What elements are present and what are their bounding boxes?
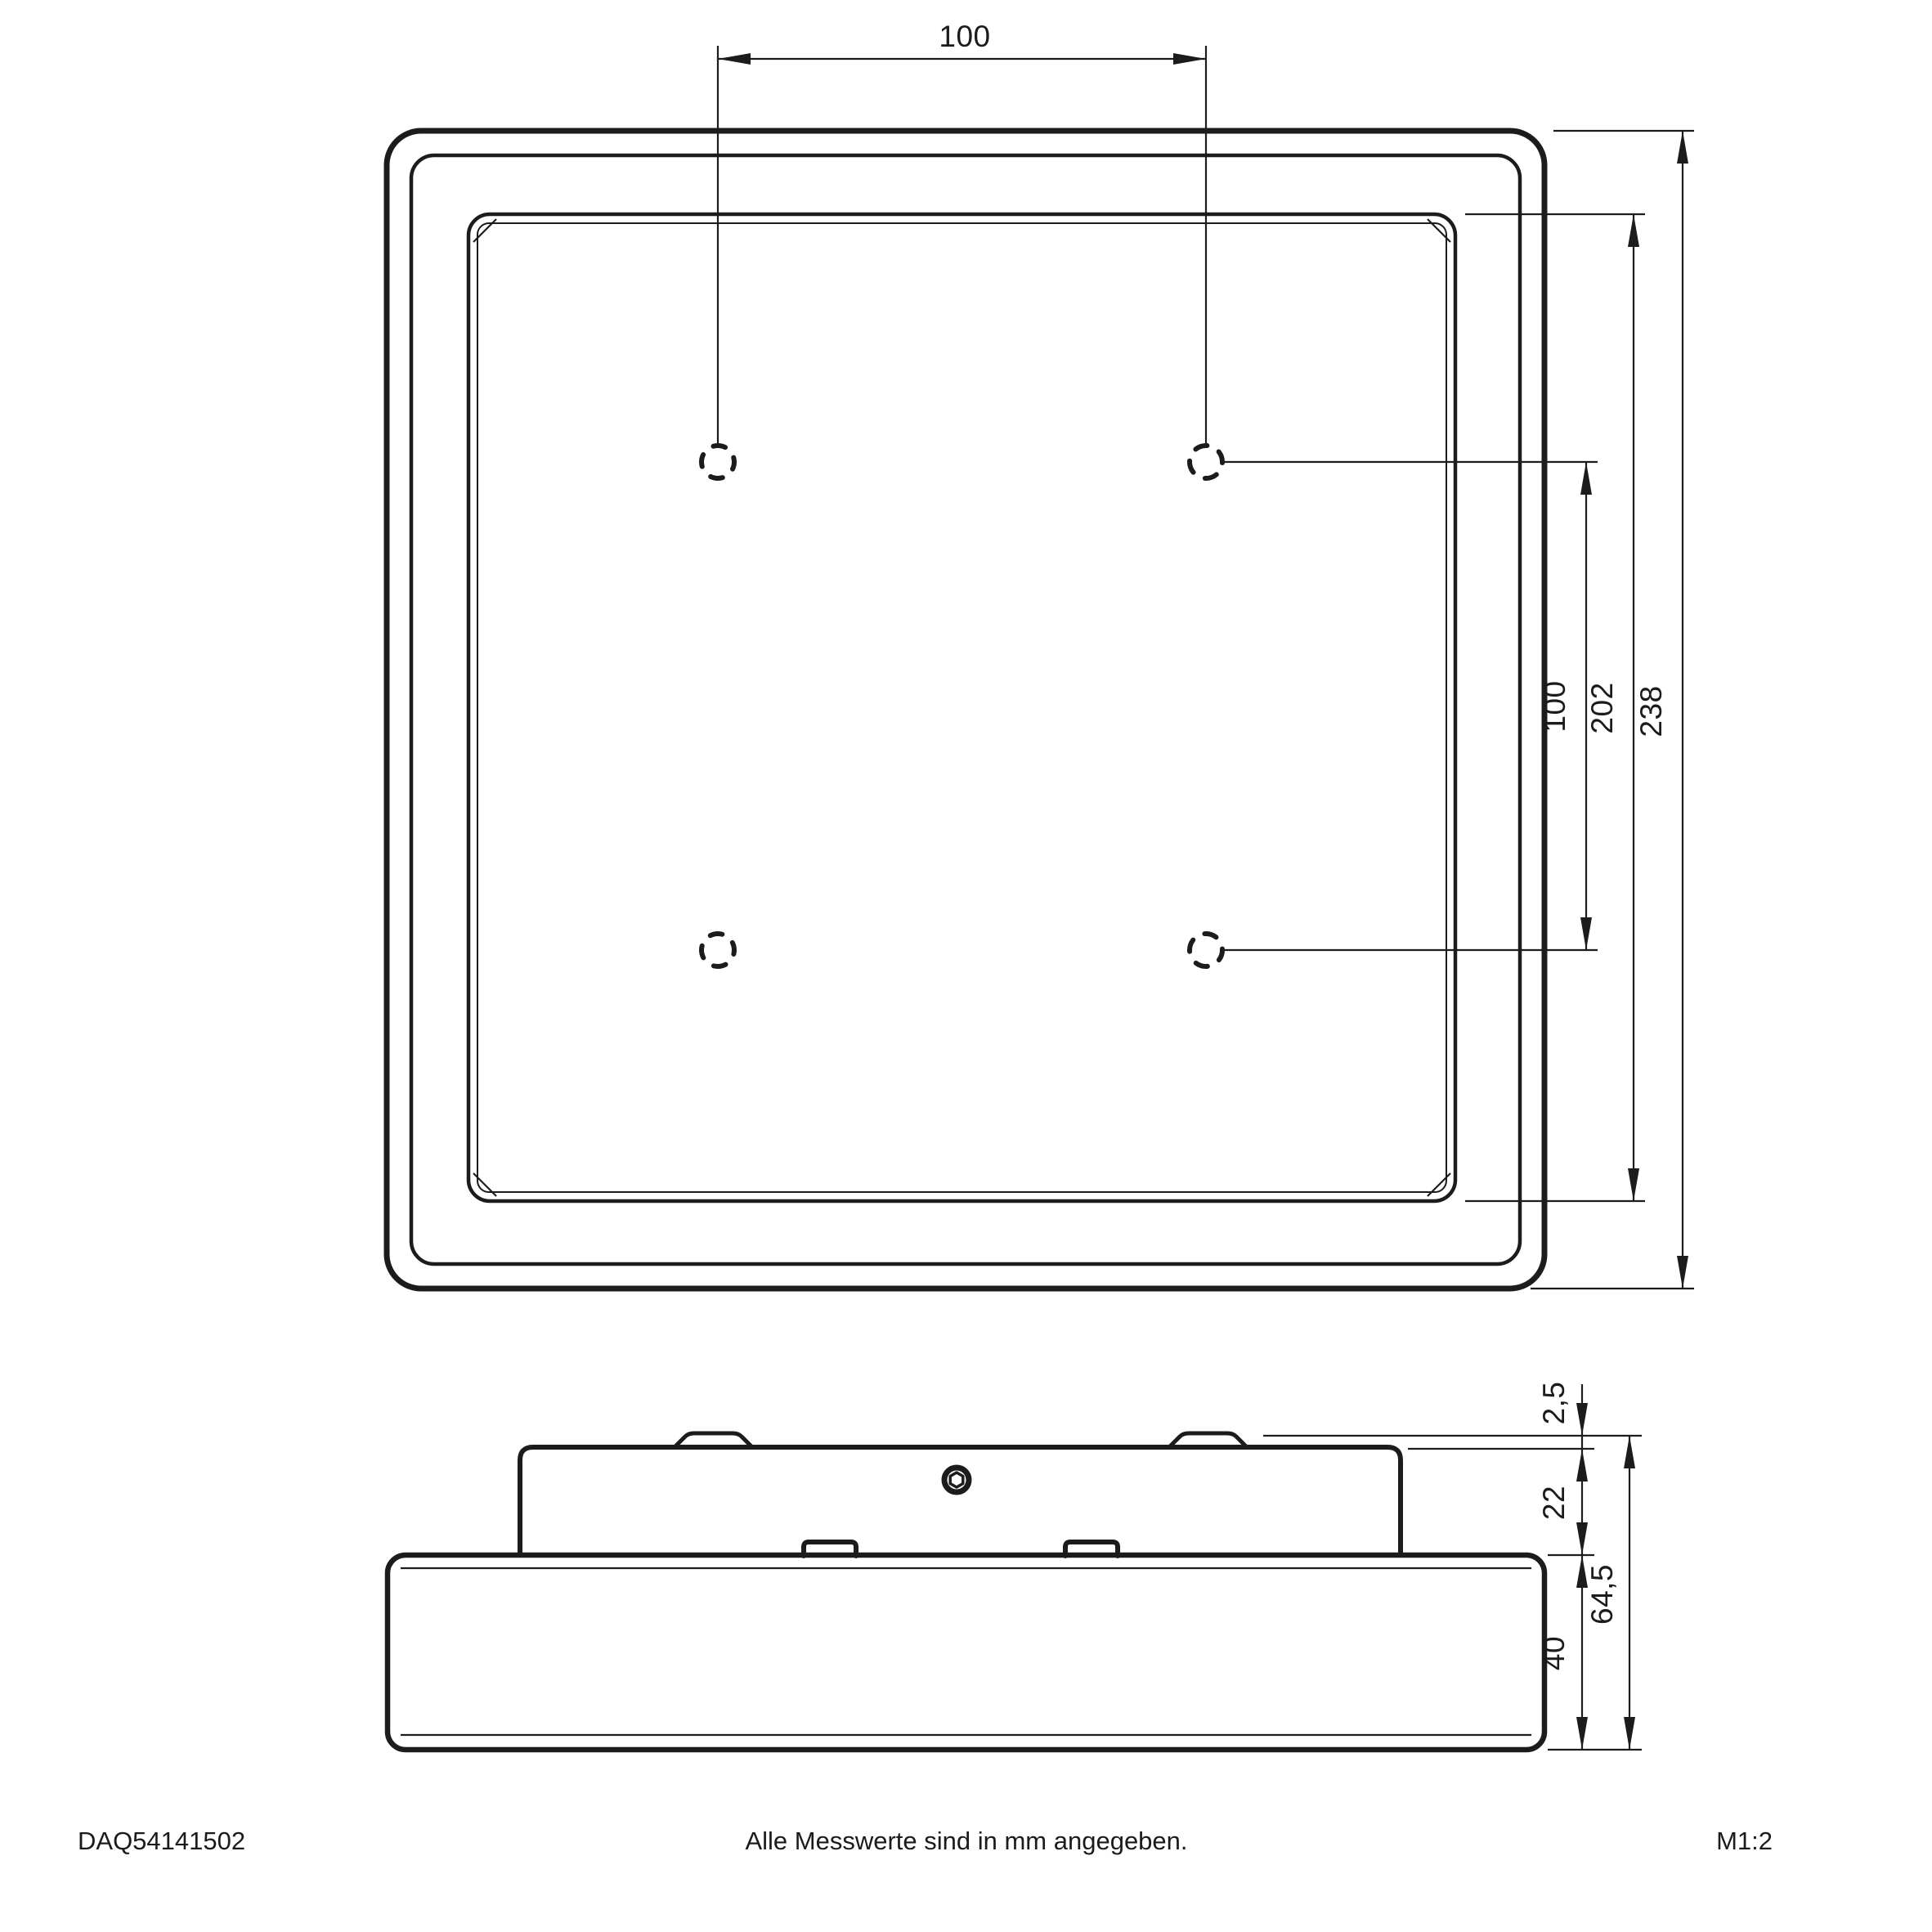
outer-frame-inner-edge [411, 155, 1520, 1264]
arrowhead-bottom [1580, 917, 1592, 950]
bevel-corner-chamfers [473, 219, 1450, 1196]
technical-drawing: 100 100 202 238 [0, 0, 1932, 1932]
arrowhead-right [1173, 53, 1206, 65]
arrowhead-bottom [1628, 1168, 1639, 1201]
dim-label-clip-protrusion: 2,5 [1537, 1382, 1571, 1425]
arrowhead-top [1624, 1436, 1635, 1468]
dim-label-frame-height: 40 [1537, 1636, 1571, 1670]
dim-label: 100 [1538, 680, 1571, 732]
arrowhead-frame-bottom [1576, 1717, 1588, 1750]
mounting-hole-bottom-right [1190, 934, 1222, 966]
dim-label: 238 [1634, 685, 1668, 737]
units-note: Alle Messwerte sind in mm angegeben. [745, 1827, 1187, 1855]
arrowhead-recess-bottom [1576, 1522, 1588, 1555]
dim-total-height: 64,5 [1585, 1436, 1635, 1750]
chamfer-bottom-left [473, 1173, 496, 1196]
dim-label-recess-height: 22 [1537, 1486, 1571, 1520]
arrowhead-bottom [1677, 1256, 1688, 1289]
arrowhead-left [718, 53, 751, 65]
chamfer-top-left [473, 219, 496, 242]
diffuser-bevel-inner-edge [477, 223, 1446, 1192]
diffuser-bevel-outer-edge [468, 214, 1455, 1201]
luminaire-frame [388, 1555, 1544, 1750]
arrowhead-top [1677, 131, 1688, 164]
hex-screw [944, 1468, 969, 1492]
mounting-holes [702, 446, 1222, 966]
part-number: DAQ54141502 [78, 1827, 245, 1855]
arrowhead-top [1628, 214, 1639, 247]
mounting-hole-top-right [1190, 446, 1222, 478]
hex-socket [950, 1473, 963, 1487]
top-view: 100 100 202 238 [387, 20, 1694, 1289]
scale-note: M1:2 [1716, 1827, 1773, 1855]
dim-label: 100 [939, 20, 990, 53]
arrowhead-bottom [1624, 1717, 1635, 1750]
drawing-page: 100 100 202 238 [0, 0, 1932, 1932]
dim-hole-spacing-horizontal: 100 [718, 20, 1206, 445]
chamfer-bottom-right [1428, 1173, 1450, 1196]
title-block: DAQ54141502 Alle Messwerte sind in mm an… [78, 1827, 1773, 1855]
dim-label: 64,5 [1585, 1564, 1619, 1625]
chamfer-top-right [1428, 219, 1450, 242]
mounting-hole-top-left [702, 446, 734, 478]
mounting-box [520, 1447, 1401, 1555]
arrowhead-recess-top [1576, 1449, 1588, 1481]
mounting-hole-bottom-left [702, 934, 734, 966]
dim-label: 202 [1585, 682, 1619, 733]
outer-frame-edge [387, 131, 1544, 1289]
side-view: 2,5 22 40 64,5 [388, 1382, 1642, 1750]
arrowhead-top [1580, 462, 1592, 495]
arrowhead-clip-top [1576, 1403, 1588, 1436]
